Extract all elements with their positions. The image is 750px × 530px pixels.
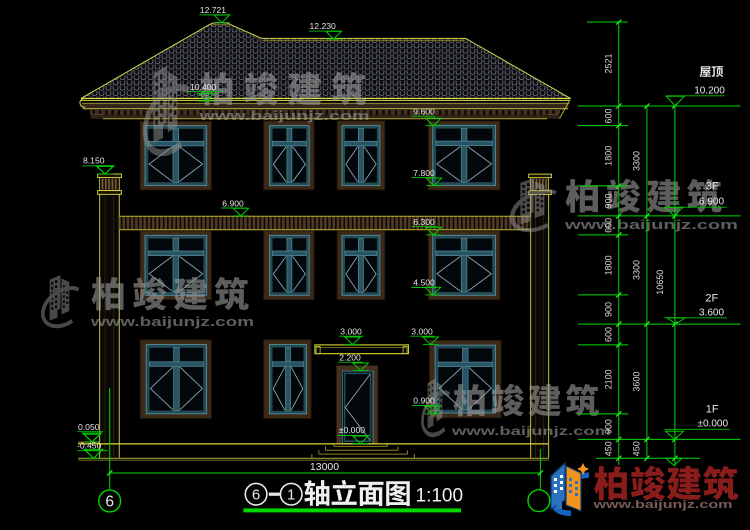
svg-text:0.900: 0.900 bbox=[413, 395, 435, 405]
svg-text:www.baijunjz.com: www.baijunjz.com bbox=[592, 499, 733, 511]
svg-text:2521: 2521 bbox=[604, 53, 614, 73]
svg-text:6: 6 bbox=[252, 487, 260, 504]
svg-text:450: 450 bbox=[632, 441, 642, 456]
svg-text:www.baijunjz.com: www.baijunjz.com bbox=[198, 109, 370, 123]
svg-text:900: 900 bbox=[604, 193, 614, 208]
svg-text:±0.000: ±0.000 bbox=[698, 419, 729, 430]
svg-text:6.900: 6.900 bbox=[222, 198, 244, 208]
svg-text:8.150: 8.150 bbox=[83, 156, 105, 166]
svg-text:3F: 3F bbox=[706, 181, 719, 193]
svg-text:3.000: 3.000 bbox=[411, 326, 433, 336]
svg-text:±0.000: ±0.000 bbox=[339, 425, 365, 435]
svg-text:3.000: 3.000 bbox=[340, 326, 362, 336]
svg-text:13000: 13000 bbox=[310, 461, 339, 473]
svg-text:1800: 1800 bbox=[604, 255, 614, 275]
svg-text:600: 600 bbox=[604, 327, 614, 342]
svg-text:6.300: 6.300 bbox=[413, 217, 435, 227]
svg-text:2100: 2100 bbox=[604, 369, 614, 389]
svg-text:1800: 1800 bbox=[604, 146, 614, 166]
svg-text:4.500: 4.500 bbox=[413, 278, 435, 288]
svg-text:600: 600 bbox=[604, 108, 614, 123]
svg-text:1: 1 bbox=[287, 487, 295, 504]
svg-text:7.800: 7.800 bbox=[413, 168, 435, 178]
svg-text:10.400: 10.400 bbox=[190, 82, 217, 92]
svg-text:3300: 3300 bbox=[632, 151, 642, 171]
svg-text:900: 900 bbox=[604, 419, 614, 434]
svg-text:6: 6 bbox=[105, 494, 114, 511]
svg-text:600: 600 bbox=[604, 218, 614, 233]
svg-text:3600: 3600 bbox=[632, 372, 642, 392]
svg-text:1:100: 1:100 bbox=[416, 486, 464, 507]
svg-text:www.baijunjz.com: www.baijunjz.com bbox=[450, 424, 611, 438]
svg-text:3300: 3300 bbox=[632, 260, 642, 280]
svg-text:6.900: 6.900 bbox=[699, 197, 724, 208]
svg-text:0.050: 0.050 bbox=[78, 422, 100, 432]
svg-text:12.230: 12.230 bbox=[310, 21, 337, 31]
svg-text:1F: 1F bbox=[706, 403, 719, 415]
svg-text:9.600: 9.600 bbox=[413, 106, 435, 116]
svg-text:www.baijunjz.com: www.baijunjz.com bbox=[563, 218, 738, 232]
svg-text:900: 900 bbox=[604, 302, 614, 317]
svg-text:12.721: 12.721 bbox=[200, 5, 227, 15]
svg-text:3.600: 3.600 bbox=[699, 308, 724, 319]
svg-text:www.baijunjz.com: www.baijunjz.com bbox=[89, 315, 254, 329]
svg-text:10650: 10650 bbox=[655, 270, 665, 295]
svg-text:2.200: 2.200 bbox=[339, 352, 361, 362]
svg-text:10.200: 10.200 bbox=[694, 85, 725, 96]
svg-text:2F: 2F bbox=[705, 292, 718, 304]
svg-text:450: 450 bbox=[604, 441, 614, 456]
